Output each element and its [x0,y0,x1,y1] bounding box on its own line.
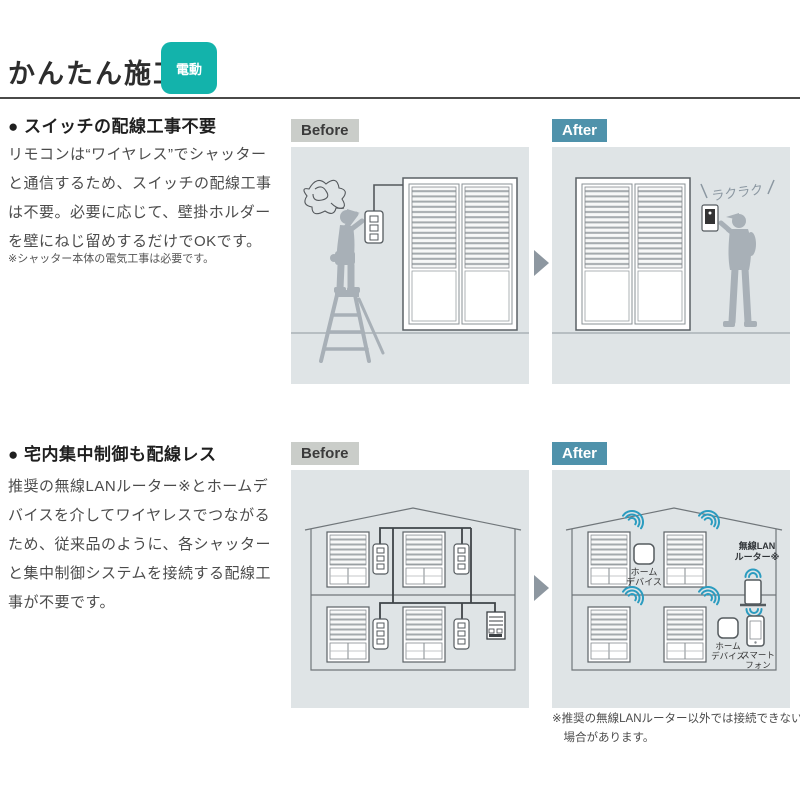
home-device-icon-2 [718,618,738,638]
router-label-line2: ルーター※ [735,551,780,562]
shutter-illustration [576,178,690,330]
before-house-illustration [291,470,529,708]
router-icon [740,580,766,605]
page-title: かんたん施工 [8,52,182,91]
section1-note: ※シャッター本体の電気工事は必要です。 [8,250,282,266]
before-panel-house [291,470,529,708]
wall-switch-icon [365,211,383,243]
after-switch-illustration: ラクラク [552,147,790,384]
section1-heading: ● スイッチの配線工事不要 [8,112,282,137]
after-panel-switch: ラクラク [552,147,790,384]
shutter-illustration [403,178,517,330]
worker-silhouette [721,213,757,327]
after-house-illustration: ホーム デバイス 無線LAN ルーター※ ホーム デバイス スマート フォン [552,470,790,708]
home-device-label-1-line2: デバイス [626,576,662,587]
home-device-label-2-line2: デバイス [711,651,745,661]
arrow-right-icon-1 [534,250,549,276]
electric-badge-label: 電動 [176,59,202,78]
smartphone-label-line2: フォン [745,660,771,670]
electric-badge: 電動 [161,42,217,94]
tangled-wire-icon [304,180,345,213]
control-panel-icon [487,612,505,639]
wifi-icon-router [746,570,761,578]
after-panel-house: ホーム デバイス 無線LAN ルーター※ ホーム デバイス スマート フォン [552,470,790,708]
worker-silhouette [330,209,362,293]
home-device-label-2-line1: ホーム [715,641,740,651]
section2-body: 推奨の無線LANルーター※とホームデバイスを介してワイヤレスでつながるため、従来… [8,472,282,617]
before-switch-illustration [291,147,529,384]
smartphone-label-line1: スマート [741,650,775,660]
section2-heading: ● 宅内集中制御も配線レス [8,440,282,465]
arrow-right-icon-2 [534,575,549,601]
rakuraku-text: ラクラク [711,181,765,203]
rakuraku-annotation: ラクラク [701,180,774,204]
home-device-icon-1 [634,544,654,564]
header-divider [0,97,800,99]
section1-body: リモコンは“ワイヤレス”でシャッターと通信するため、スイッチの配線工事は不要。必… [8,140,282,256]
before-label-1: Before [291,119,359,142]
before-panel-switch [291,147,529,384]
wall-holder-icon [702,205,718,231]
after-label-1: After [552,119,607,142]
after-label-2: After [552,442,607,465]
switch-wire [374,185,403,211]
before-label-2: Before [291,442,359,465]
router-label-line1: 無線LAN [739,540,776,551]
stepladder-icon [321,290,383,361]
section2-footnote: ※推奨の無線LANルーター以外では接続できない場合があります。 [552,710,800,748]
home-device-label-1-line1: ホーム [631,567,658,577]
smartphone-icon [747,616,764,646]
